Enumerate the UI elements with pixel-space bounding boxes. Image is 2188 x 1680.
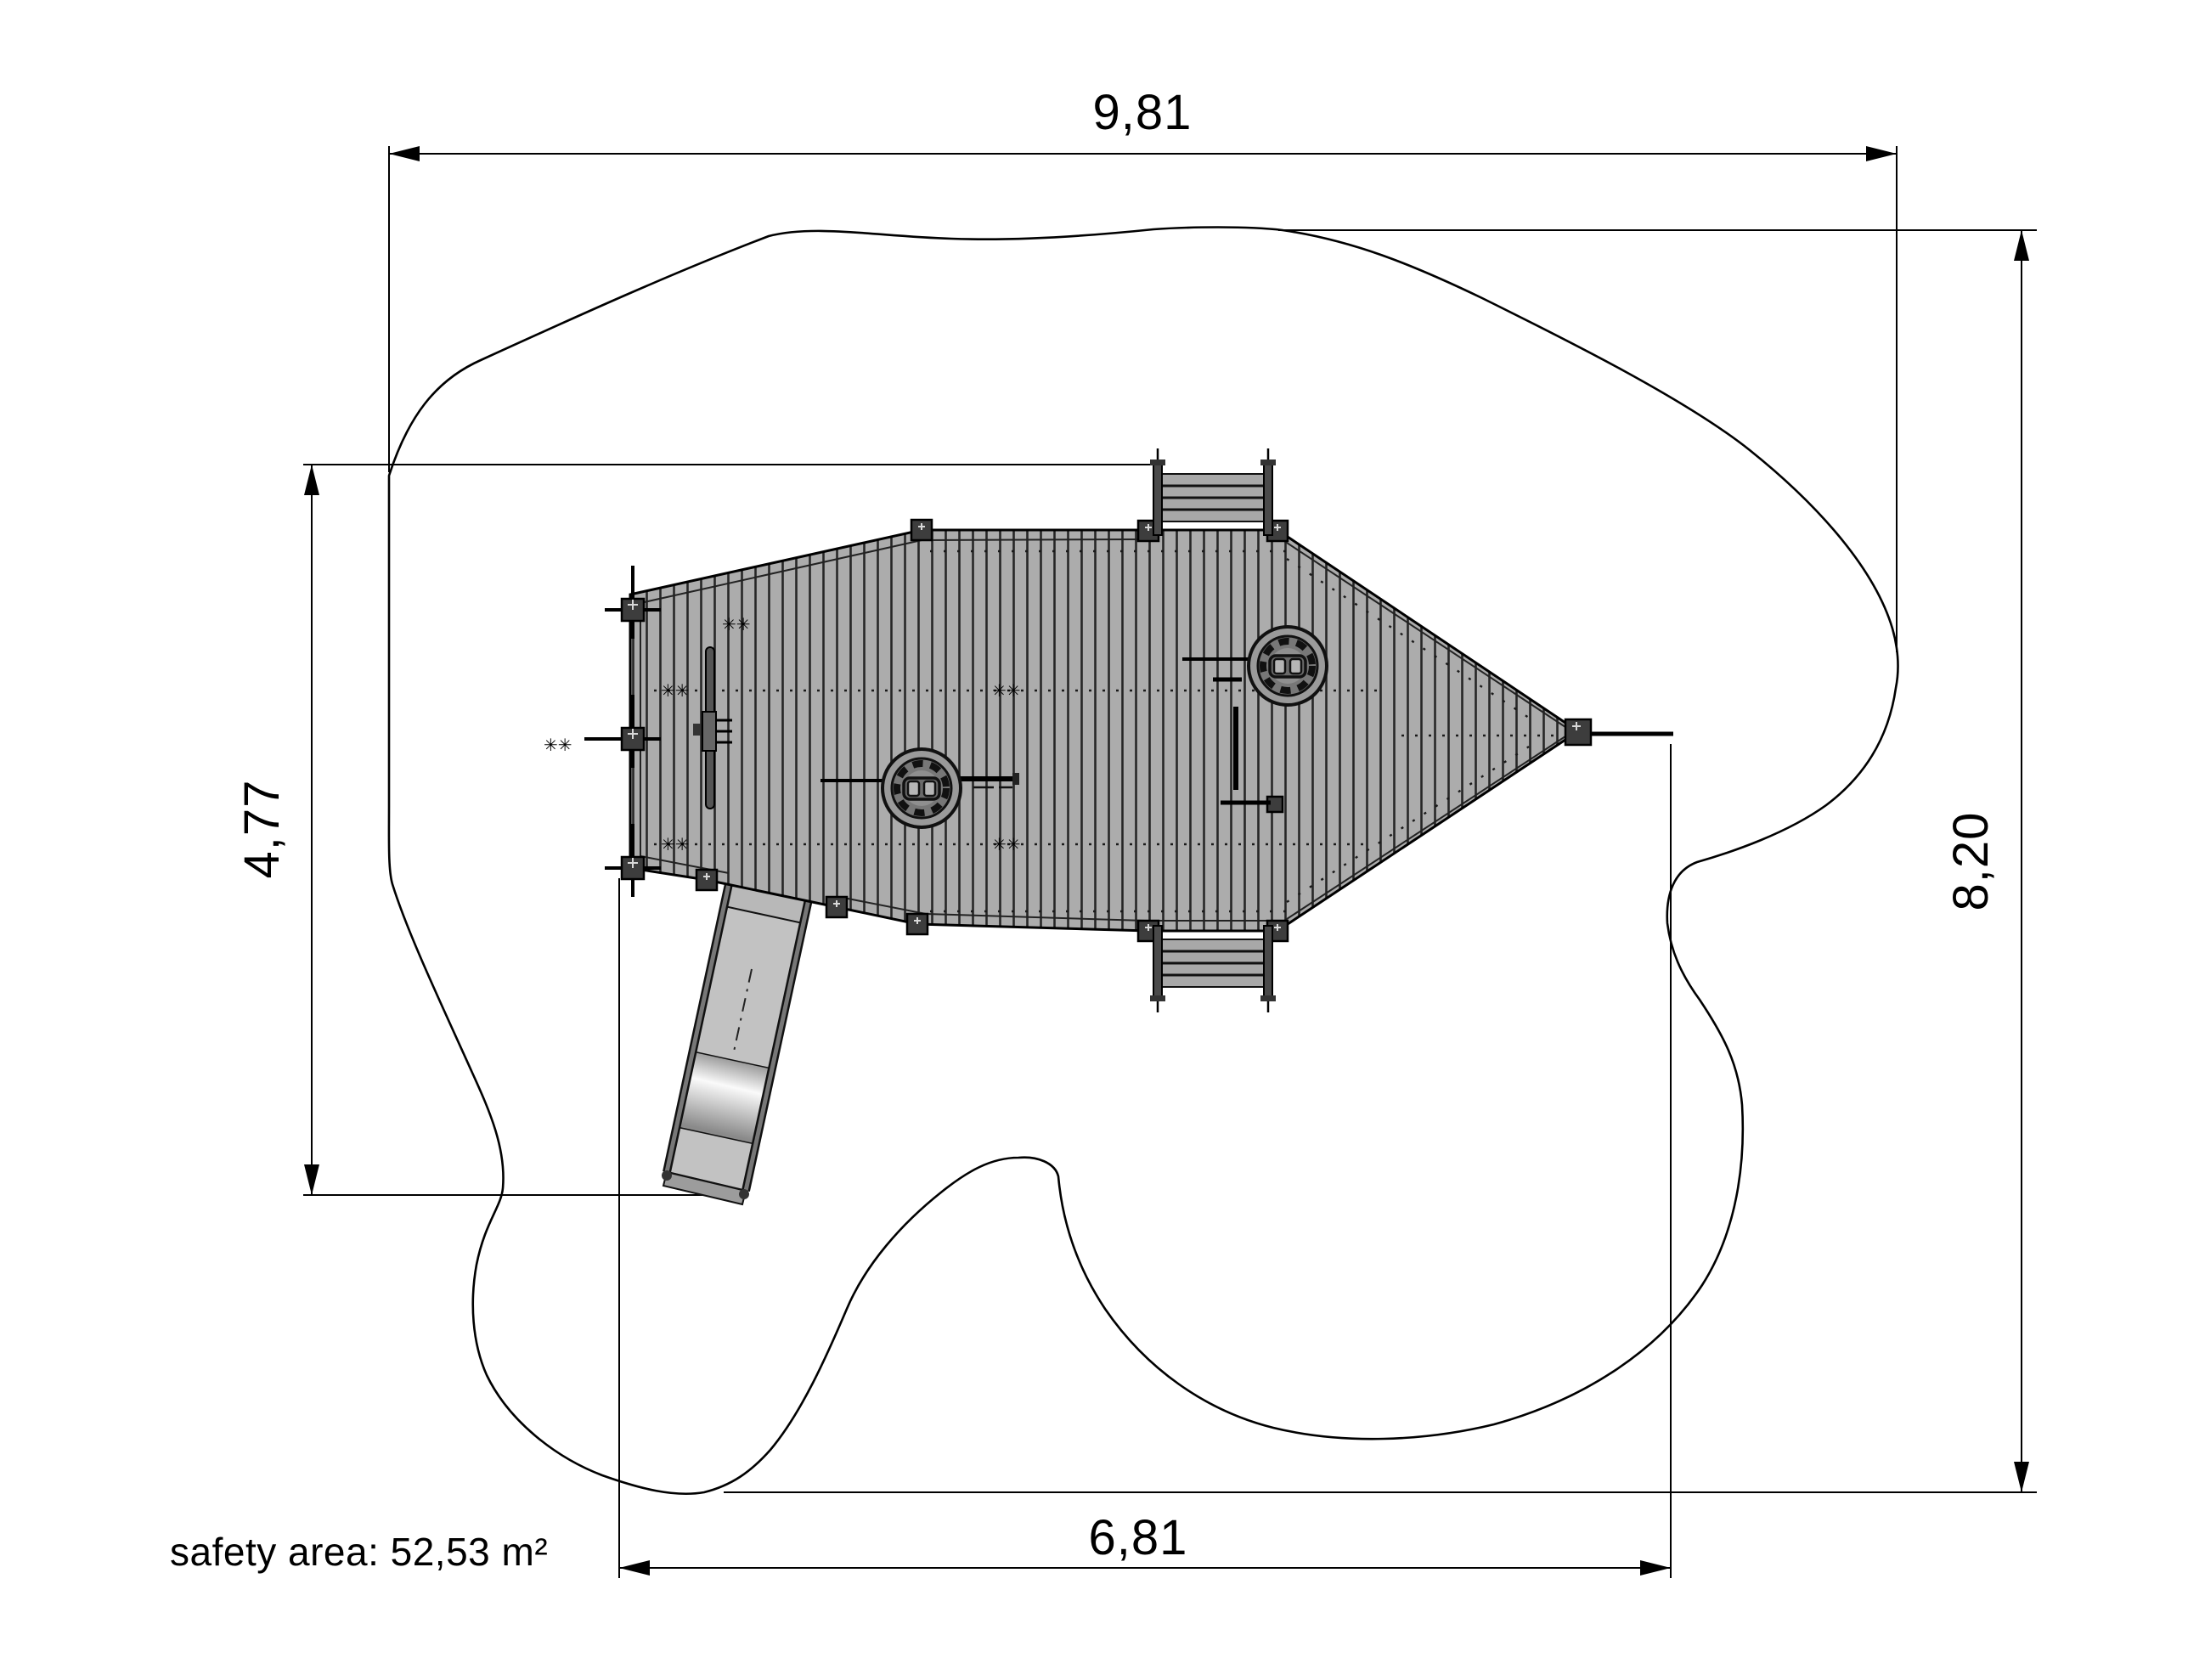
- ladder-rail-cap: [1150, 459, 1165, 465]
- ladder-rail: [1153, 464, 1162, 535]
- support-cap: [1012, 773, 1019, 785]
- svg-text:✳✳: ✳✳: [722, 616, 751, 634]
- arrowhead: [389, 146, 420, 161]
- dimension-label-structure-width: 6,81: [1089, 1510, 1188, 1565]
- svg-text:✳✳: ✳✳: [661, 682, 690, 701]
- dimension-label-structure-height: 4,77: [234, 780, 290, 879]
- ladder-rail: [1264, 926, 1272, 997]
- slide-foot: [739, 1189, 749, 1199]
- arrowhead: [2014, 1462, 2029, 1492]
- svg-text:✳✳: ✳✳: [544, 736, 572, 755]
- arrowhead: [304, 1164, 319, 1195]
- svg-text:✳✳: ✳✳: [661, 836, 690, 854]
- safety-area-label: safety area: 52,53 m²: [170, 1530, 548, 1574]
- playground-plan-drawing: 9,81 8,20 4,77 6,81 safety area: 52,53 m…: [0, 0, 2188, 1680]
- slide-foot: [662, 1170, 672, 1181]
- ladder-top: [1150, 448, 1276, 535]
- ladder-rail: [1264, 464, 1272, 535]
- ladder-rail-cap: [1260, 459, 1276, 465]
- dimension-label-overall-height: 8,20: [1943, 812, 1999, 911]
- slide: [662, 868, 811, 1204]
- ladder-bottom: [1150, 926, 1276, 1012]
- deck-planking: [630, 530, 1578, 931]
- arrowhead: [1866, 146, 1897, 161]
- arrowhead: [2014, 230, 2029, 261]
- arrowhead: [304, 465, 319, 495]
- ladder-rail-cap: [1260, 995, 1276, 1001]
- ladder-rail-cap: [1150, 995, 1165, 1001]
- bow-post: [1565, 719, 1591, 745]
- dimension-label-overall-width: 9,81: [1093, 85, 1193, 140]
- arrowhead: [619, 1560, 650, 1576]
- svg-text:✳✳: ✳✳: [992, 682, 1021, 701]
- ladder-rail: [1153, 926, 1162, 997]
- svg-text:✳✳: ✳✳: [992, 836, 1021, 854]
- arrowhead: [1640, 1560, 1671, 1576]
